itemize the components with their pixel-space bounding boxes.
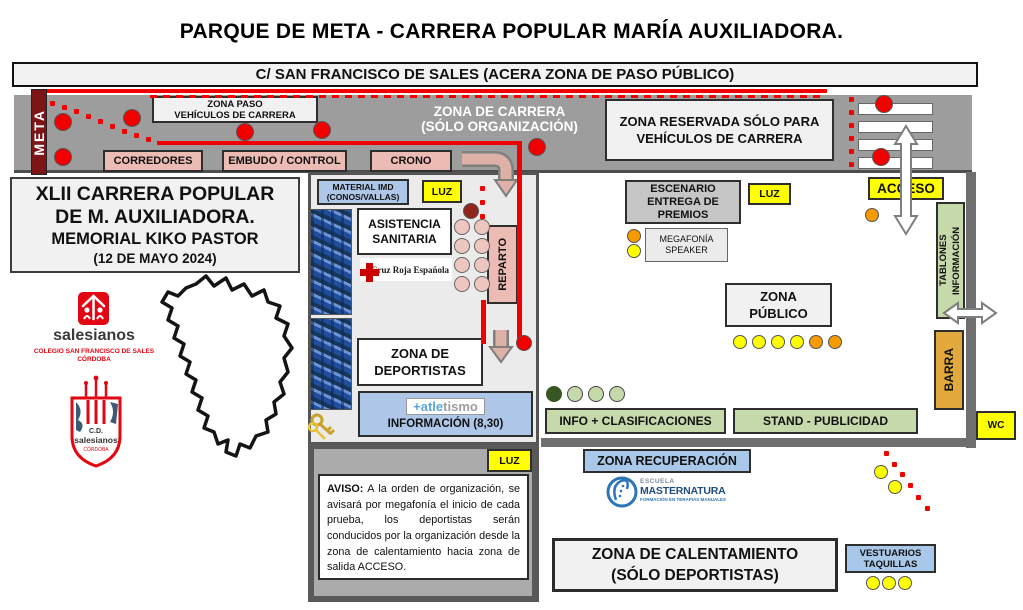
green-circle	[588, 386, 604, 402]
page-title: PARQUE DE META - CARRERA POPULAR MARÍA A…	[0, 20, 1023, 44]
stand-publicidad-box: STAND - PUBLICIDAD	[733, 408, 918, 434]
cd-salesianos-crest: C.D. salesianos CÓRDOBA	[72, 376, 120, 466]
salesianos-wordmark: salesianos	[40, 327, 148, 345]
cordoba-map-outline	[162, 276, 292, 456]
atletismo-logo: +atletismo	[406, 398, 485, 415]
green-circle	[609, 386, 625, 402]
yellow-circle	[888, 480, 902, 494]
crono-label: CRONO	[391, 155, 432, 167]
grandstand-photo-top	[310, 209, 352, 315]
yellow-circle	[627, 244, 641, 258]
material-line1: MATERIAL IMD	[332, 182, 393, 192]
route-line-short	[481, 300, 486, 344]
orange-circle	[865, 208, 879, 222]
cruz-roja-label: Cruz Roja Española	[371, 265, 452, 275]
vehicle-bay-4	[858, 157, 933, 169]
parque-de-meta-diagram: PARQUE DE META - CARRERA POPULAR MARÍA A…	[0, 0, 1023, 610]
informacion-label: INFORMACIÓN (8,30)	[388, 418, 504, 430]
publico-line2: PÚBLICO	[749, 305, 808, 322]
colegio-label: COLEGIO SAN FRANCISCO DE SALES CÓRDOBA	[15, 348, 173, 364]
vestuarios-line2: TAQUILLAS	[864, 559, 918, 570]
aviso-label: AVISO:	[327, 483, 363, 495]
asistencia-line1: ASISTENCIA	[368, 217, 441, 232]
megafonia-line2: SPEAKER	[665, 245, 708, 256]
asistencia-sanitaria-box: ASISTENCIA SANITARIA	[357, 208, 452, 255]
megafonia-box: MEGAFONÍA SPEAKER	[645, 228, 728, 262]
orange-circle	[627, 229, 641, 243]
colegio-line2: CÓRDOBA	[15, 356, 173, 364]
zona-paso-line1: ZONA PASO	[207, 99, 262, 110]
bottom-wall	[541, 438, 976, 447]
zona-calentamiento-box: ZONA DE CALENTAMIENTO (SÓLO DEPORTISTAS)	[552, 538, 838, 592]
luz-label-3: LUZ	[759, 188, 779, 200]
zona-carrera-line1: ZONA DE CARRERA	[407, 104, 592, 119]
acceso-box: ACCESO	[868, 177, 944, 200]
orange-circle	[828, 335, 842, 349]
calentamiento-line2: (SÓLO DEPORTISTAS)	[611, 565, 779, 586]
tablones-label: TABLONES INFORMACIÓN	[937, 204, 964, 317]
publico-line1: ZONA	[760, 288, 797, 305]
vehicle-bay-3	[858, 139, 933, 151]
acceso-label: ACCESO	[877, 181, 935, 196]
grandstand-photo-bottom	[310, 318, 352, 410]
tablones-informacion-box: TABLONES INFORMACIÓN	[936, 202, 965, 319]
crest-cd-label: C.D.	[89, 428, 103, 435]
event-title-line1: XLII CARRERA POPULAR	[36, 183, 275, 206]
bottom-dotted-diagonal	[916, 495, 921, 500]
zona-publico-box: ZONA PÚBLICO	[725, 283, 832, 327]
route-line-top	[33, 89, 827, 93]
yellow-circle	[874, 465, 888, 479]
corredores-box: CORREDORES	[103, 150, 203, 172]
vehicle-bay-1	[858, 103, 933, 115]
barra-label: BARRA	[942, 348, 956, 391]
atletismo-logo-blue: +atle	[413, 399, 443, 414]
info-clasificaciones-label: INFO + CLASIFICACIONES	[559, 414, 711, 428]
escenario-line2: ENTREGA DE	[647, 196, 719, 209]
masternatura-line3: FORMACIÓN EN TERAPIAS MANUALES	[640, 497, 790, 502]
masternatura-wordmark: ESCUELA MASTERNATURA FORMACIÓN EN TERAPI…	[640, 478, 790, 502]
luz-label-2: LUZ	[499, 455, 519, 467]
reparto-label: REPARTO	[497, 238, 509, 291]
recuperacion-label: ZONA RECUPERACIÓN	[597, 454, 737, 468]
deportistas-line2: DEPORTISTAS	[374, 362, 466, 379]
event-info-box: XLII CARRERA POPULAR DE M. AUXILIADORA. …	[10, 177, 300, 273]
luz-label-1: LUZ	[432, 186, 452, 198]
bottom-dotted-diagonal	[892, 462, 897, 467]
yellow-circle	[898, 576, 912, 590]
wc-box: WC	[976, 411, 1016, 440]
yellow-circle	[882, 576, 896, 590]
zona-deportistas-box: ZONA DE DEPORTISTAS	[357, 338, 483, 386]
luz-box-escenario: LUZ	[748, 183, 791, 205]
route-line-top-dashed	[150, 95, 826, 98]
event-date-line: (12 DE MAYO 2024)	[93, 250, 216, 267]
event-memorial-line: MEMORIAL KIKO PASTOR	[51, 229, 258, 250]
cruz-roja-box: Cruz Roja Española	[360, 258, 452, 281]
zona-carrera-label: ZONA DE CARRERA (SÓLO ORGANIZACIÓN)	[407, 104, 592, 134]
luz-box-aviso: LUZ	[487, 449, 532, 472]
vestuarios-taquillas-box: VESTUARIOS TAQUILLAS	[845, 544, 936, 573]
deportistas-line1: ZONA DE	[391, 345, 449, 362]
escenario-premios-box: ESCENARIO ENTREGA DE PREMIOS	[625, 180, 741, 224]
zona-paso-box: ZONA PASO VEHÍCULOS DE CARRERA	[152, 96, 318, 123]
street-bar: C/ SAN FRANCISCO DE SALES (ACERA ZONA DE…	[12, 62, 978, 87]
masternatura-icon	[608, 478, 636, 506]
masternatura-line2: MASTERNATURA	[640, 485, 790, 497]
salesianos-icon	[78, 292, 109, 325]
material-imd-box: MATERIAL IMD (CONOS/VALLAS)	[317, 179, 409, 205]
route-line-mid	[157, 141, 519, 145]
yellow-circle	[752, 335, 766, 349]
green-circle-filled	[546, 386, 562, 402]
meta-label: META	[31, 109, 47, 156]
crono-box: CRONO	[370, 150, 452, 172]
bottom-dotted-diagonal	[884, 451, 889, 456]
colegio-line1: COLEGIO SAN FRANCISCO DE SALES	[15, 348, 173, 356]
atletismo-info-box: +atletismo INFORMACIÓN (8,30)	[358, 391, 533, 437]
embudo-label: EMBUDO / CONTROL	[228, 155, 340, 167]
bottom-dotted-diagonal	[925, 506, 930, 511]
crest-name-label: salesianos	[74, 435, 118, 445]
masternatura-line1: ESCUELA	[640, 478, 790, 485]
meta-finish-sign: META	[31, 89, 47, 175]
yellow-circle	[733, 335, 747, 349]
embudo-control-box: EMBUDO / CONTROL	[222, 150, 347, 172]
crest-city-label: CÓRDOBA	[83, 446, 109, 453]
zona-paso-line2: VEHÍCULOS DE CARRERA	[174, 110, 295, 121]
escenario-line3: PREMIOS	[658, 209, 709, 222]
atletismo-logo-gray: tismo	[443, 399, 478, 414]
route-line-vertical	[517, 141, 522, 345]
stand-publicidad-label: STAND - PUBLICIDAD	[763, 414, 888, 428]
reparto-box: REPARTO	[487, 225, 518, 304]
info-clasificaciones-box: INFO + CLASIFICACIONES	[545, 408, 726, 434]
street-label: C/ SAN FRANCISCO DE SALES (ACERA ZONA DE…	[256, 66, 735, 83]
right-wall	[966, 172, 976, 448]
aviso-text-box: AVISO: A la orden de organización, se av…	[318, 474, 529, 580]
zona-reservada-line1: ZONA RESERVADA SÓLO PARA	[620, 113, 820, 130]
luz-box-central: LUZ	[422, 180, 462, 203]
megafonia-line1: MEGAFONÍA	[659, 234, 713, 245]
green-circle	[567, 386, 583, 402]
event-title-line2: DE M. AUXILIADORA.	[55, 206, 255, 229]
vestuarios-line1: VESTUARIOS	[860, 548, 922, 559]
aviso-text: A la orden de organización, se avisará p…	[327, 483, 520, 573]
escenario-line1: ESCENARIO	[650, 183, 715, 196]
orange-circle	[809, 335, 823, 349]
yellow-circle	[790, 335, 804, 349]
bottom-dotted-diagonal	[908, 483, 913, 488]
bottom-dotted-diagonal	[900, 472, 905, 477]
barra-box: BARRA	[934, 330, 964, 410]
corredores-label: CORREDORES	[114, 155, 193, 167]
zona-recuperacion-box: ZONA RECUPERACIÓN	[583, 449, 751, 473]
calentamiento-line1: ZONA DE CALENTAMIENTO	[592, 544, 798, 565]
vehicle-bay-2	[858, 121, 933, 133]
yellow-circle	[771, 335, 785, 349]
zona-reservada-line2: VEHÍCULOS DE CARRERA	[636, 130, 802, 147]
asistencia-line2: SANITARIA	[372, 232, 436, 247]
wc-label: WC	[988, 420, 1005, 431]
zona-reservada-box: ZONA RESERVADA SÓLO PARA VEHÍCULOS DE CA…	[605, 99, 834, 161]
material-line2: (CONOS/VALLAS)	[327, 192, 400, 202]
yellow-circle	[866, 576, 880, 590]
zona-carrera-line2: (SÓLO ORGANIZACIÓN)	[407, 119, 592, 134]
